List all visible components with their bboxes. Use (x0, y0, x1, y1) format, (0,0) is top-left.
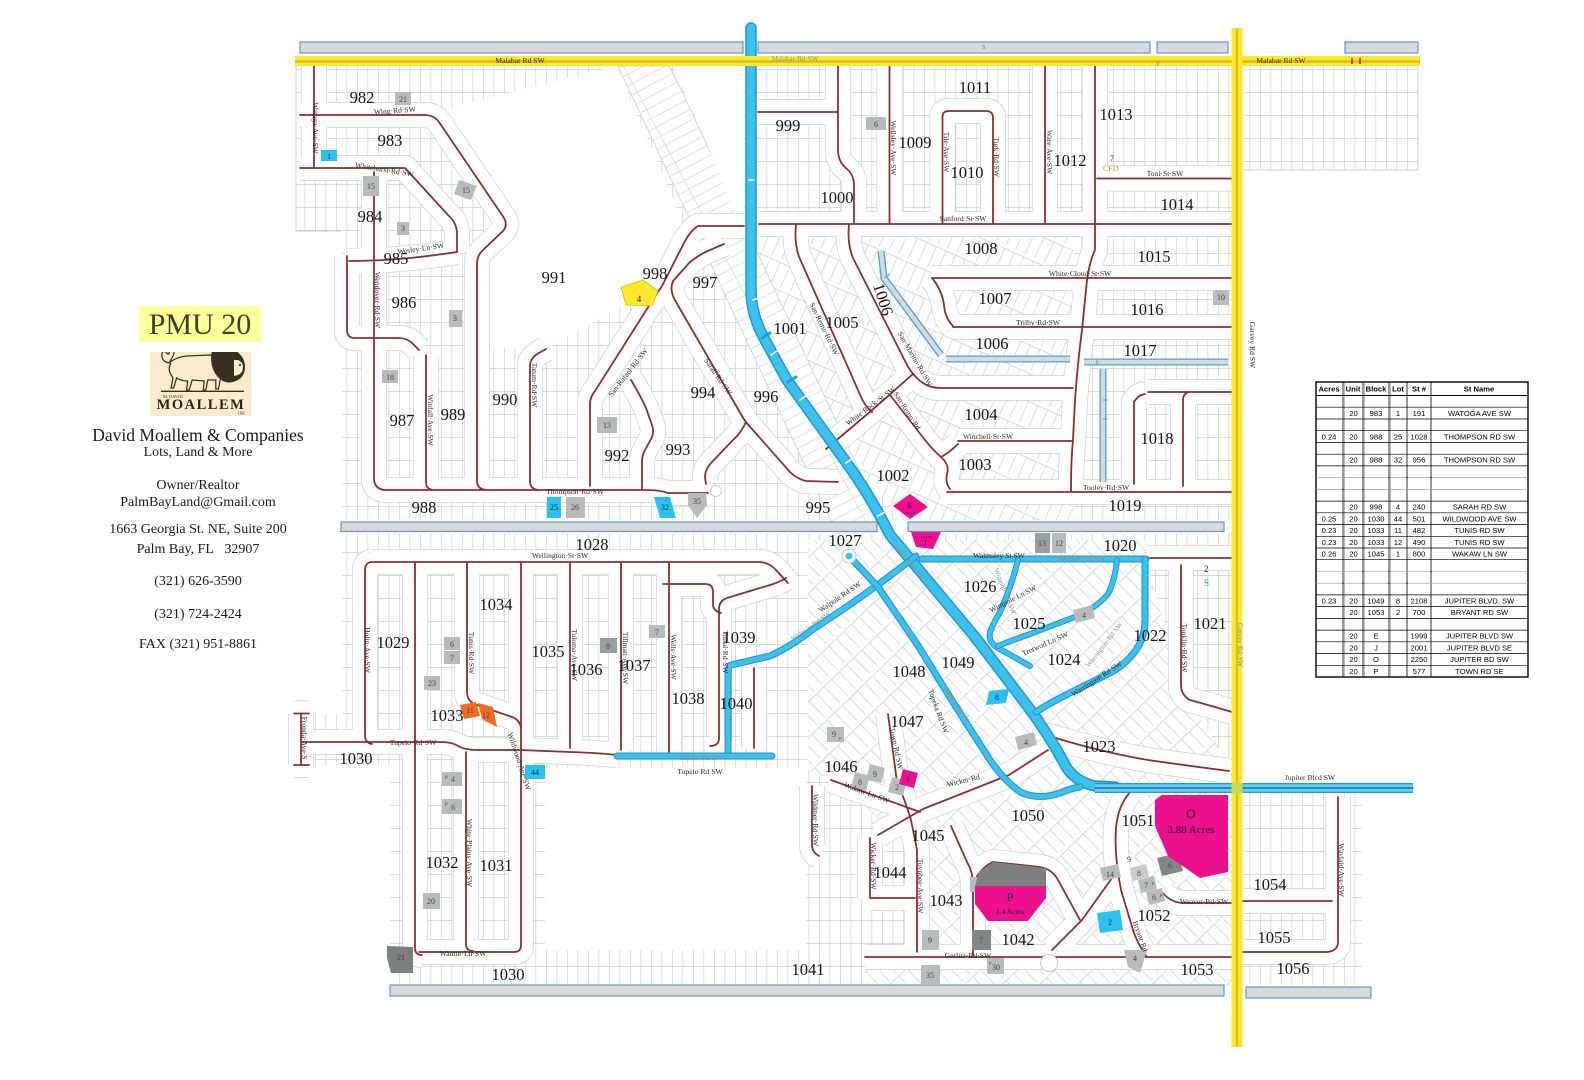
svg-text:26: 26 (571, 503, 579, 512)
svg-text:Turk·Rd·SW: Turk·Rd·SW (992, 137, 1001, 178)
svg-text:9: 9 (928, 936, 932, 945)
svg-text:Garvey Rd SW: Garvey Rd SW (1248, 322, 1257, 369)
svg-text:1012: 1012 (1054, 151, 1087, 170)
svg-text:FAX (321) 951-8861: FAX (321) 951-8861 (139, 637, 257, 652)
svg-text:Waylaid·Ave·SW: Waylaid·Ave·SW (1337, 843, 1346, 897)
svg-text:3: 3 (401, 224, 405, 233)
svg-text:20: 20 (1349, 655, 1357, 664)
svg-text:T: T (1156, 62, 1160, 68)
svg-text:9: 9 (873, 770, 877, 779)
svg-text:2: 2 (895, 783, 899, 792)
svg-text:482: 482 (1413, 526, 1426, 535)
svg-text:Tonklin·Rd·SW: Tonklin·Rd·SW (1180, 624, 1189, 674)
svg-text:1053: 1053 (1181, 960, 1214, 979)
svg-text:7: 7 (979, 936, 983, 945)
svg-text:1056: 1056 (1277, 959, 1310, 978)
svg-text:White·Cloud·St·SW: White·Cloud·St·SW (1049, 269, 1112, 278)
svg-text:WILDWOOD AVE SW: WILDWOOD AVE SW (1442, 514, 1517, 523)
svg-text:1052: 1052 (1138, 906, 1171, 925)
svg-text:White·Plains·Ave·SW: White·Plains·Ave·SW (465, 819, 474, 888)
svg-text:20: 20 (1349, 550, 1357, 559)
svg-text:8: 8 (1137, 869, 1141, 878)
svg-text:1021: 1021 (1194, 614, 1227, 633)
svg-text:INC: INC (238, 411, 246, 416)
svg-text:1053: 1053 (1368, 608, 1385, 617)
svg-text:1028: 1028 (576, 535, 609, 554)
svg-text:1013: 1013 (1100, 105, 1133, 124)
svg-text:20: 20 (1349, 597, 1357, 606)
svg-text:1049: 1049 (942, 653, 975, 672)
svg-text:S: S (1204, 578, 1209, 588)
svg-text:998: 998 (643, 264, 668, 283)
svg-text:6: 6 (451, 803, 455, 812)
svg-text:O: O (1186, 806, 1195, 821)
svg-text:1015: 1015 (1138, 247, 1171, 266)
svg-text:P: P (1373, 667, 1378, 676)
svg-text:1034: 1034 (480, 595, 513, 614)
svg-text:1045: 1045 (912, 826, 945, 845)
svg-text:1045: 1045 (1368, 550, 1385, 559)
svg-text:1023: 1023 (1083, 737, 1116, 756)
svg-text:Tupelo·Rd·SW: Tupelo·Rd·SW (680, 754, 723, 762)
svg-text:4: 4 (451, 775, 455, 784)
svg-text:6: 6 (1168, 861, 1172, 870)
svg-text:999: 999 (776, 116, 801, 135)
svg-text:Malabar Rd SW: Malabar Rd SW (495, 56, 545, 65)
svg-text:JUPITER BLVD SW: JUPITER BLVD SW (1446, 632, 1514, 641)
svg-text:PMU 20: PMU 20 (149, 308, 252, 341)
svg-text:1055: 1055 (1258, 928, 1291, 947)
svg-text:1027: 1027 (829, 531, 862, 550)
svg-text:1006: 1006 (976, 334, 1009, 353)
svg-text:11: 11 (466, 706, 474, 715)
svg-text:1033: 1033 (1368, 526, 1385, 535)
svg-text:Trilby·Rd·SW: Trilby·Rd·SW (1016, 318, 1061, 327)
svg-text:6: 6 (1152, 893, 1156, 902)
svg-text:1030: 1030 (1368, 514, 1385, 523)
svg-text:20: 20 (427, 897, 435, 906)
svg-text:12: 12 (482, 711, 490, 720)
svg-text:20: 20 (1349, 432, 1357, 441)
svg-text:20: 20 (1349, 456, 1357, 465)
svg-text:Wellsley·Ave·SW: Wellsley·Ave·SW (889, 121, 898, 177)
svg-text:23: 23 (428, 679, 436, 688)
svg-text:Block: Block (1366, 385, 1387, 394)
svg-text:THOMPSON RD SW: THOMPSON RD SW (1444, 456, 1516, 465)
svg-text:4: 4 (1396, 503, 1400, 512)
svg-text:987: 987 (390, 411, 415, 430)
svg-text:Sanford·St·SW: Sanford·St·SW (940, 214, 988, 223)
svg-text:30: 30 (992, 963, 1000, 972)
svg-text:984: 984 (358, 207, 383, 226)
svg-text:995: 995 (806, 498, 831, 517)
svg-text:Wells·Ave·SW: Wells·Ave·SW (669, 634, 678, 680)
svg-text:P: P (1007, 890, 1014, 904)
svg-text:10: 10 (1217, 293, 1225, 302)
svg-text:Tupelo·Rd·SW: Tupelo·Rd·SW (390, 738, 437, 747)
svg-text:1018: 1018 (1141, 429, 1174, 448)
svg-text:1002: 1002 (877, 466, 910, 485)
svg-text:4: 4 (637, 294, 642, 304)
svg-text:0.23: 0.23 (1322, 526, 1337, 535)
svg-text:TOWN RD SE: TOWN RD SE (1455, 667, 1503, 676)
svg-text:2250: 2250 (1411, 655, 1428, 664)
svg-text:1663 Georgia St. NE, Suite 200: 1663 Georgia St. NE, Suite 200 (109, 522, 286, 537)
svg-text:4: 4 (1024, 738, 1028, 747)
svg-text:JUPITER BD SW: JUPITER BD SW (1450, 655, 1509, 664)
svg-text:20: 20 (1349, 667, 1357, 676)
svg-text:1007: 1007 (979, 289, 1012, 308)
svg-text:1031: 1031 (480, 856, 513, 875)
svg-text:1051: 1051 (1122, 811, 1155, 830)
svg-text:Watoga·Ave·SW: Watoga·Ave·SW (311, 102, 320, 154)
svg-text:15: 15 (462, 186, 470, 195)
svg-text:35: 35 (926, 971, 934, 980)
svg-text:1999: 1999 (1411, 632, 1428, 641)
svg-text:986: 986 (392, 293, 417, 312)
svg-text:240: 240 (1413, 503, 1426, 512)
svg-text:Acres: Acres (1318, 385, 1339, 394)
svg-text:1046: 1046 (825, 757, 858, 776)
svg-text:CFD: CFD (1103, 164, 1119, 173)
svg-text:800: 800 (1413, 550, 1426, 559)
svg-text:1035: 1035 (532, 642, 565, 661)
svg-text:1004: 1004 (965, 405, 998, 424)
svg-text:TUNIS RD SW: TUNIS RD SW (1454, 526, 1505, 535)
svg-text:9: 9 (832, 730, 836, 739)
svg-text:Tupelo Rd SW: Tupelo Rd SW (677, 767, 723, 776)
svg-text:35: 35 (693, 497, 701, 506)
svg-text:983: 983 (378, 131, 403, 150)
svg-text:20: 20 (1349, 409, 1357, 418)
svg-text:Weaver·Rd·SW: Weaver·Rd·SW (1180, 897, 1229, 906)
svg-text:JUPITER BLVD SE: JUPITER BLVD SE (1447, 643, 1512, 652)
svg-text:TUNIS RD SW: TUNIS RD SW (1454, 538, 1505, 547)
svg-text:P: P (445, 776, 448, 781)
svg-text:1038: 1038 (672, 689, 705, 708)
svg-text:1029: 1029 (377, 633, 410, 652)
svg-text:992: 992 (605, 446, 630, 465)
svg-text:14: 14 (1106, 870, 1114, 879)
svg-text:Jupiter Blcd SW: Jupiter Blcd SW (1285, 773, 1336, 782)
svg-text:1044: 1044 (874, 863, 907, 882)
svg-text:998: 998 (1370, 503, 1383, 512)
svg-text:P: P (445, 803, 448, 808)
svg-text:15: 15 (367, 182, 375, 191)
svg-text:David Moallem & Companies: David Moallem & Companies (92, 425, 304, 445)
svg-text:1010: 1010 (951, 163, 984, 182)
svg-text:18: 18 (386, 373, 394, 382)
svg-text:1.4 Acres: 1.4 Acres (996, 907, 1024, 916)
svg-text:Toynbee·Ave·SW: Toynbee·Ave·SW (916, 859, 925, 914)
svg-text:20: 20 (1349, 608, 1357, 617)
svg-text:988: 988 (1370, 432, 1383, 441)
svg-text:20: 20 (1349, 526, 1357, 535)
svg-text:Palm Bay, FL 32907: Palm Bay, FL 32907 (137, 542, 260, 557)
svg-text:7: 7 (1110, 154, 1114, 163)
svg-text:988: 988 (1370, 456, 1383, 465)
svg-text:Tunis·Rd·SW: Tunis·Rd·SW (467, 632, 476, 675)
svg-text:Malabar·Rd·SW: Malabar·Rd·SW (772, 55, 819, 63)
svg-text:1: 1 (1396, 550, 1400, 559)
svg-text:2108: 2108 (1411, 597, 1428, 606)
svg-text:Holin·Ave·SW: Holin·Ave·SW (363, 627, 372, 674)
svg-text:1: 1 (1396, 409, 1400, 418)
svg-text:1033: 1033 (1368, 538, 1385, 547)
svg-text:1039: 1039 (723, 628, 756, 647)
svg-text:12: 12 (1394, 538, 1402, 547)
svg-text:32: 32 (661, 503, 669, 512)
svg-text:1032: 1032 (426, 853, 459, 872)
svg-text:490: 490 (1413, 538, 1426, 547)
svg-text:Tatum·Rd·SW: Tatum·Rd·SW (530, 363, 539, 408)
svg-text:1001: 1001 (774, 319, 807, 338)
svg-text:9: 9 (1127, 855, 1131, 864)
svg-text:Lot: Lot (1392, 385, 1404, 394)
svg-text:1014: 1014 (1161, 195, 1194, 214)
svg-text:1042: 1042 (1002, 930, 1035, 949)
svg-text:SARAH RD SW: SARAH RD SW (1453, 503, 1507, 512)
svg-text:Walmsley St SW: Walmsley St SW (973, 551, 1026, 560)
svg-text:1043: 1043 (930, 891, 963, 910)
svg-text:20: 20 (1349, 514, 1357, 523)
svg-text:1: 1 (327, 152, 331, 161)
svg-text:2: 2 (1108, 918, 1112, 927)
svg-text:4: 4 (1082, 611, 1086, 620)
svg-text:0.24: 0.24 (1322, 432, 1337, 441)
svg-text:BRYANT RD SW: BRYANT RD SW (1451, 608, 1509, 617)
svg-text:21: 21 (399, 95, 407, 104)
svg-text:997: 997 (693, 273, 718, 292)
svg-text:8: 8 (606, 642, 610, 651)
svg-text:1022: 1022 (1134, 626, 1167, 645)
svg-text:PalmBayLand@Gmail.com: PalmBayLand@Gmail.com (120, 495, 276, 510)
svg-text:Owner/Realtor: Owner/Realtor (156, 478, 240, 493)
svg-text:Unit: Unit (1346, 385, 1361, 394)
svg-text:1037: 1037 (618, 656, 651, 675)
svg-text:1028: 1028 (1411, 432, 1428, 441)
svg-text:WAKAW LN SW: WAKAW LN SW (1452, 550, 1508, 559)
svg-text:1024: 1024 (1048, 650, 1081, 669)
svg-text:0.23: 0.23 (1322, 538, 1337, 547)
svg-text:44: 44 (1394, 514, 1402, 523)
svg-text:Gerlitz·Rd·SW: Gerlitz·Rd·SW (945, 951, 992, 960)
svg-text:23 Acre: 23 Acre (921, 535, 932, 539)
svg-text:.26 Acre: .26 Acre (904, 511, 916, 515)
svg-text:Walmsley·St·SW: Walmsley·St·SW (1057, 555, 1106, 563)
svg-text:991: 991 (542, 268, 567, 287)
svg-text:E: E (1373, 632, 1378, 641)
svg-text:1003: 1003 (959, 455, 992, 474)
svg-text:990: 990 (493, 390, 518, 409)
svg-text:20: 20 (1349, 503, 1357, 512)
svg-text:44: 44 (531, 768, 539, 777)
svg-text:1: 1 (906, 775, 910, 784)
svg-text:8: 8 (1396, 597, 1400, 606)
svg-text:1020: 1020 (1104, 536, 1137, 555)
svg-text:20: 20 (1349, 643, 1357, 652)
svg-text:2: 2 (1204, 564, 1209, 574)
svg-text:1009: 1009 (899, 133, 932, 152)
svg-text:0.23: 0.23 (1322, 597, 1337, 606)
svg-text:988: 988 (412, 498, 437, 517)
svg-text:S: S (982, 45, 985, 51)
svg-text:MOALLEM: MOALLEM (157, 397, 246, 413)
svg-text:1054: 1054 (1254, 875, 1287, 894)
svg-text:994: 994 (691, 383, 716, 402)
svg-text:Lots, Land & More: Lots, Land & More (144, 445, 253, 460)
svg-text:13: 13 (603, 421, 611, 430)
svg-text:1008: 1008 (965, 239, 998, 258)
svg-text:Tooley·Rd·SW: Tooley·Rd·SW (1083, 483, 1130, 492)
svg-text:1005: 1005 (826, 313, 859, 332)
svg-text:993: 993 (666, 440, 691, 459)
svg-text:1041: 1041 (792, 960, 825, 979)
svg-text:6: 6 (874, 120, 878, 129)
svg-text:J: J (924, 539, 927, 547)
svg-text:1017: 1017 (1124, 341, 1157, 360)
svg-text:(321) 724-2424: (321) 724-2424 (154, 607, 242, 622)
svg-text:1033: 1033 (431, 706, 464, 725)
svg-text:1000: 1000 (821, 188, 854, 207)
svg-text:J: J (1374, 643, 1378, 652)
svg-text:St Name: St Name (1464, 385, 1494, 394)
svg-text:989: 989 (441, 405, 466, 424)
svg-text:1036: 1036 (570, 660, 603, 679)
svg-text:1048: 1048 (893, 662, 926, 681)
svg-text:996: 996 (754, 387, 779, 406)
svg-text:0.26: 0.26 (1322, 550, 1337, 559)
svg-text:1050: 1050 (1012, 806, 1045, 825)
svg-text:32: 32 (1394, 456, 1402, 465)
svg-text:1016: 1016 (1131, 300, 1164, 319)
svg-text:501: 501 (1413, 514, 1426, 523)
svg-text:3: 3 (453, 314, 457, 323)
svg-text:13: 13 (1038, 539, 1046, 548)
svg-text:O: O (1373, 655, 1379, 664)
svg-text:1040: 1040 (720, 694, 753, 713)
svg-text:2: 2 (1396, 608, 1400, 617)
svg-text:985: 985 (384, 249, 409, 268)
svg-text:E: E (908, 501, 913, 510)
svg-text:Wendover·Rd·SW: Wendover·Rd·SW (373, 272, 382, 329)
svg-text:7: 7 (450, 654, 454, 663)
svg-text:25: 25 (1394, 432, 1402, 441)
svg-text:1030: 1030 (340, 749, 373, 768)
svg-text:0.25: 0.25 (1322, 514, 1337, 523)
svg-text:25: 25 (550, 503, 558, 512)
svg-text:191: 191 (1413, 409, 1426, 418)
svg-text:21: 21 (397, 953, 405, 962)
svg-text:20: 20 (1349, 538, 1357, 547)
svg-text:1026: 1026 (964, 577, 997, 596)
svg-text:1047: 1047 (891, 712, 924, 731)
svg-text:Wildmer·Rd·SW: Wildmer·Rd·SW (811, 794, 820, 847)
svg-text:577: 577 (1413, 667, 1426, 676)
svg-text:2001: 2001 (1411, 643, 1428, 652)
svg-text:1049: 1049 (1368, 597, 1385, 606)
svg-text:7: 7 (1144, 881, 1148, 890)
svg-text:20: 20 (1349, 632, 1357, 641)
svg-text:3.88 Acres: 3.88 Acres (1167, 824, 1214, 836)
svg-text:6: 6 (450, 640, 454, 649)
svg-text:7: 7 (655, 628, 659, 637)
svg-text:St #: St # (1412, 385, 1427, 394)
svg-text:Garvey·Rd·SW: Garvey·Rd·SW (1236, 623, 1244, 667)
svg-text:1011: 1011 (959, 78, 991, 97)
svg-text:THOMPSON RD SW: THOMPSON RD SW (1444, 432, 1516, 441)
svg-text:982: 982 (350, 88, 375, 107)
svg-text:1019: 1019 (1109, 496, 1142, 515)
svg-text:8: 8 (995, 693, 999, 702)
svg-text:(321) 626-3590: (321) 626-3590 (154, 574, 242, 589)
svg-text:12: 12 (1055, 539, 1063, 548)
svg-text:Malabar Rd SW: Malabar Rd SW (1256, 56, 1306, 65)
svg-text:WATOGA AVE SW: WATOGA AVE SW (1448, 409, 1512, 418)
svg-text:Thompson·Rd·SW: Thompson·Rd·SW (546, 487, 605, 496)
svg-text:Winchell·St·SW: Winchell·St·SW (963, 432, 1014, 441)
svg-text:Winfall·Ave·SW: Winfall·Ave·SW (426, 394, 435, 446)
svg-text:4: 4 (1133, 954, 1137, 963)
svg-text:Fronda·Ave·S: Fronda·Ave·S (300, 717, 309, 760)
svg-text:983: 983 (1370, 409, 1383, 418)
svg-text:1025: 1025 (1013, 614, 1046, 633)
svg-text:956: 956 (1413, 456, 1426, 465)
svg-text:1030: 1030 (492, 965, 525, 984)
svg-text:700: 700 (1413, 608, 1426, 617)
svg-text:Toni·St·SW: Toni·St·SW (1147, 169, 1184, 178)
svg-text:JUPITER BLVD. SW: JUPITER BLVD. SW (1445, 597, 1515, 606)
svg-text:Walnut·Ln·SW: Walnut·Ln·SW (440, 949, 487, 958)
svg-text:11: 11 (1394, 526, 1402, 535)
